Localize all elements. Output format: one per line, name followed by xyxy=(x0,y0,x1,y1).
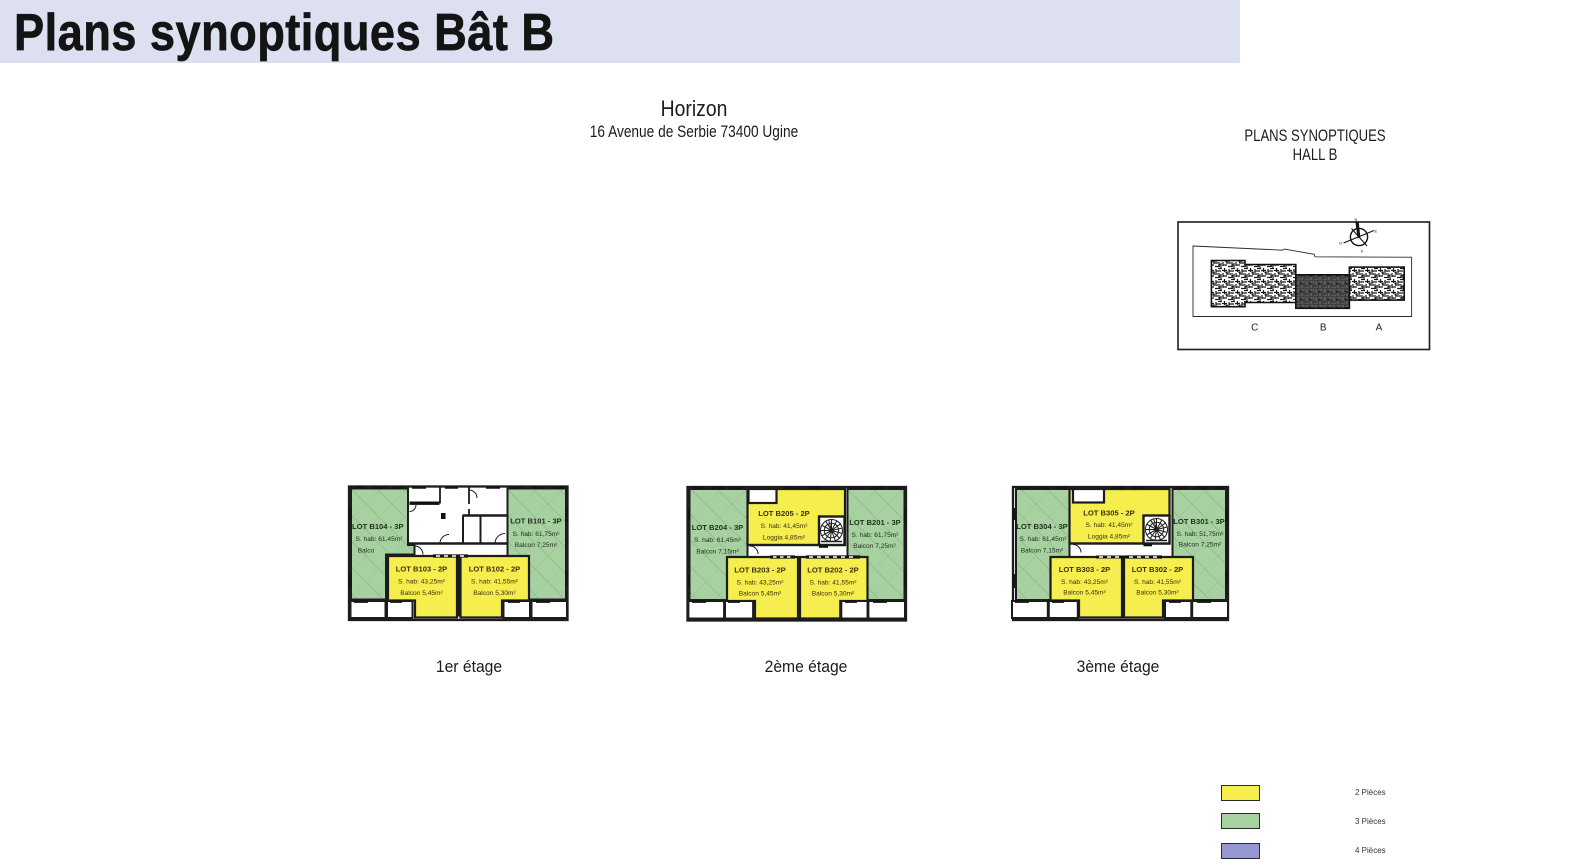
svg-text:N: N xyxy=(1355,217,1358,222)
svg-text:S. hab: 43,25m²: S. hab: 43,25m² xyxy=(1061,579,1109,586)
svg-text:Balcon 7,15m²: Balcon 7,15m² xyxy=(1021,548,1064,555)
svg-text:S. hab: 43,25m²: S. hab: 43,25m² xyxy=(398,579,446,586)
svg-text:LOT B101 - 3P: LOT B101 - 3P xyxy=(510,517,561,526)
svg-text:A: A xyxy=(1376,323,1383,334)
svg-text:S. hab: 61,45m²: S. hab: 61,45m² xyxy=(356,536,404,543)
svg-text:LOT B301 - 3P: LOT B301 - 3P xyxy=(1173,517,1224,526)
svg-text:S. hab: 61,75m²: S. hab: 61,75m² xyxy=(513,531,561,538)
svg-text:LOT B205 - 2P: LOT B205 - 2P xyxy=(758,509,809,518)
svg-text:Balcon 5,30m²: Balcon 5,30m² xyxy=(1136,590,1179,597)
svg-text:E: E xyxy=(1375,229,1378,234)
svg-text:S. hab: 41,45m²: S. hab: 41,45m² xyxy=(1086,522,1134,529)
svg-text:Balcon 5,45m²: Balcon 5,45m² xyxy=(739,591,782,598)
svg-text:S. hab: 41,55m²: S. hab: 41,55m² xyxy=(471,579,519,586)
svg-text:S. hab: 41,45m²: S. hab: 41,45m² xyxy=(761,523,809,530)
svg-text:LOT B102 - 2P: LOT B102 - 2P xyxy=(469,565,520,574)
svg-text:Balcon 5,45m²: Balcon 5,45m² xyxy=(1063,590,1106,597)
svg-text:C: C xyxy=(1251,323,1258,334)
svg-text:O: O xyxy=(1339,241,1342,246)
svg-text:Balcon 7,15m²: Balcon 7,15m² xyxy=(696,549,739,556)
svg-text:S. hab: 43,25m²: S. hab: 43,25m² xyxy=(737,580,785,587)
svg-text:LOT B304 - 3P: LOT B304 - 3P xyxy=(1016,522,1067,531)
svg-text:Loggia 4,85m²: Loggia 4,85m² xyxy=(1088,534,1131,541)
svg-text:Balcon 7,25m²: Balcon 7,25m² xyxy=(853,543,896,550)
svg-text:Balcon 5,30m²: Balcon 5,30m² xyxy=(812,591,855,598)
svg-text:LOT B302 - 2P: LOT B302 - 2P xyxy=(1132,565,1183,574)
svg-text:S. hab: 41,55m²: S. hab: 41,55m² xyxy=(1134,579,1182,586)
svg-text:S. hab: 61,45m²: S. hab: 61,45m² xyxy=(694,537,742,544)
svg-text:Balcon 7,25m²: Balcon 7,25m² xyxy=(1179,542,1222,549)
svg-text:S. hab: 41,55m²: S. hab: 41,55m² xyxy=(810,580,858,587)
svg-text:Balcon 5,45m²: Balcon 5,45m² xyxy=(400,590,443,597)
svg-text:S. hab: 61,45m²: S. hab: 61,45m² xyxy=(1020,536,1068,543)
svg-text:LOT B204 - 3P: LOT B204 - 3P xyxy=(692,523,743,532)
svg-text:Balcon 5,30m²: Balcon 5,30m² xyxy=(473,590,516,597)
svg-text:LOT B303 - 2P: LOT B303 - 2P xyxy=(1059,565,1110,574)
svg-text:LOT B201 - 3P: LOT B201 - 3P xyxy=(849,518,900,527)
svg-text:S: S xyxy=(1361,249,1364,254)
svg-text:S. hab: 51,75m²: S. hab: 51,75m² xyxy=(1177,531,1225,538)
svg-text:Loggia 4,85m²: Loggia 4,85m² xyxy=(763,535,806,542)
svg-text:S. hab: 61,75m²: S. hab: 61,75m² xyxy=(852,532,900,539)
svg-text:LOT B202 - 2P: LOT B202 - 2P xyxy=(807,566,858,575)
svg-text:Balco: Balco xyxy=(358,548,375,555)
svg-text:LOT B103 - 2P: LOT B103 - 2P xyxy=(396,565,447,574)
svg-text:LOT B104 - 3P: LOT B104 - 3P xyxy=(352,522,403,531)
svg-text:LOT B203 - 2P: LOT B203 - 2P xyxy=(734,566,785,575)
svg-text:B: B xyxy=(1320,323,1327,334)
svg-text:Balcon 7,25m²: Balcon 7,25m² xyxy=(515,542,558,549)
svg-text:LOT B305 - 2P: LOT B305 - 2P xyxy=(1083,509,1134,518)
